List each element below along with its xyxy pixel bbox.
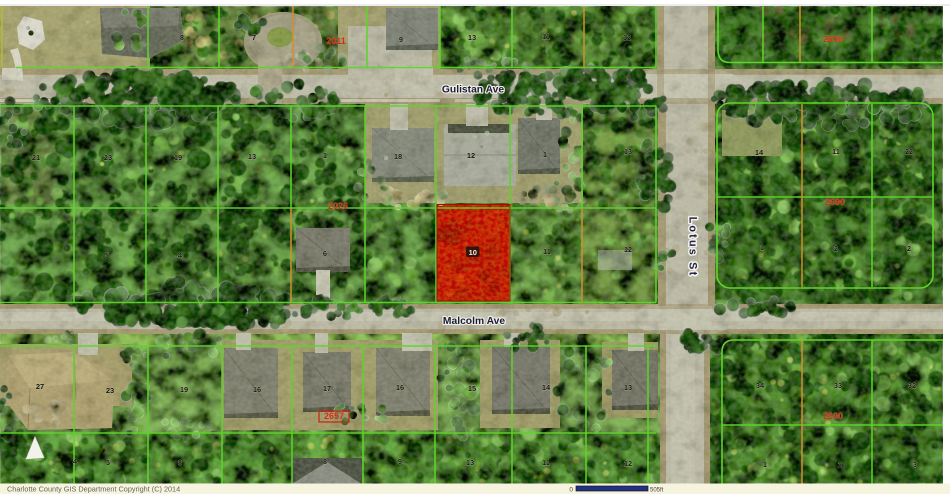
svg-text:13: 13 bbox=[466, 458, 474, 467]
svg-text:Charlotte County GIS Departmen: Charlotte County GIS Department Copyrigh… bbox=[7, 485, 180, 494]
svg-text:1: 1 bbox=[543, 150, 547, 159]
svg-text:19: 19 bbox=[174, 153, 182, 162]
svg-text:9: 9 bbox=[399, 35, 403, 44]
svg-text:14: 14 bbox=[755, 148, 764, 157]
svg-text:12: 12 bbox=[624, 459, 632, 468]
svg-text:27: 27 bbox=[36, 382, 44, 391]
svg-text:Lotus St: Lotus St bbox=[687, 217, 699, 278]
svg-text:12: 12 bbox=[624, 245, 632, 254]
svg-text:1: 1 bbox=[323, 151, 327, 160]
svg-text:8: 8 bbox=[180, 33, 184, 42]
svg-text:2656: 2656 bbox=[823, 34, 843, 44]
svg-text:33: 33 bbox=[834, 381, 842, 390]
svg-text:1: 1 bbox=[763, 460, 767, 469]
svg-text:12: 12 bbox=[623, 33, 631, 42]
svg-text:13: 13 bbox=[248, 152, 256, 161]
svg-text:6: 6 bbox=[323, 249, 327, 258]
svg-text:11: 11 bbox=[542, 458, 550, 467]
svg-text:13: 13 bbox=[624, 383, 632, 392]
svg-text:14: 14 bbox=[542, 383, 551, 392]
svg-text:505ft: 505ft bbox=[650, 488, 664, 494]
svg-text:12: 12 bbox=[467, 151, 475, 160]
svg-text:10: 10 bbox=[469, 248, 477, 257]
svg-text:23: 23 bbox=[106, 386, 114, 395]
svg-text:18: 18 bbox=[394, 152, 402, 161]
svg-text:2600: 2600 bbox=[823, 411, 843, 421]
svg-text:3: 3 bbox=[913, 460, 917, 469]
svg-text:Gulistan Ave: Gulistan Ave bbox=[442, 85, 504, 96]
svg-text:15: 15 bbox=[468, 384, 476, 393]
svg-text:16: 16 bbox=[396, 383, 404, 392]
svg-text:2: 2 bbox=[838, 460, 842, 469]
svg-text:1: 1 bbox=[760, 243, 764, 252]
svg-text:11: 11 bbox=[542, 32, 550, 41]
svg-text:34: 34 bbox=[756, 381, 765, 390]
svg-text:2690: 2690 bbox=[825, 197, 845, 207]
svg-text:2: 2 bbox=[907, 244, 911, 253]
svg-text:11: 11 bbox=[832, 147, 840, 156]
svg-text:2011: 2011 bbox=[326, 36, 346, 46]
svg-text:16: 16 bbox=[253, 385, 261, 394]
svg-text:0: 0 bbox=[569, 487, 573, 494]
svg-text:5: 5 bbox=[106, 458, 110, 467]
svg-text:11: 11 bbox=[543, 247, 551, 256]
svg-text:19: 19 bbox=[180, 385, 188, 394]
svg-text:32: 32 bbox=[908, 381, 916, 390]
svg-text:2026: 2026 bbox=[328, 201, 348, 211]
svg-text:17: 17 bbox=[323, 384, 331, 393]
svg-text:22: 22 bbox=[905, 147, 913, 156]
svg-text:13: 13 bbox=[468, 33, 476, 42]
svg-text:13: 13 bbox=[624, 147, 632, 156]
svg-text:8: 8 bbox=[323, 457, 327, 466]
svg-text:2657: 2657 bbox=[324, 411, 344, 421]
svg-text:7: 7 bbox=[252, 33, 256, 42]
svg-text:9: 9 bbox=[398, 457, 402, 466]
svg-text:2: 2 bbox=[834, 244, 838, 253]
svg-text:5: 5 bbox=[105, 251, 109, 260]
svg-text:Malcolm Ave: Malcolm Ave bbox=[443, 316, 505, 327]
svg-text:8: 8 bbox=[178, 458, 182, 467]
svg-text:21: 21 bbox=[32, 153, 40, 162]
svg-text:23: 23 bbox=[104, 153, 112, 162]
